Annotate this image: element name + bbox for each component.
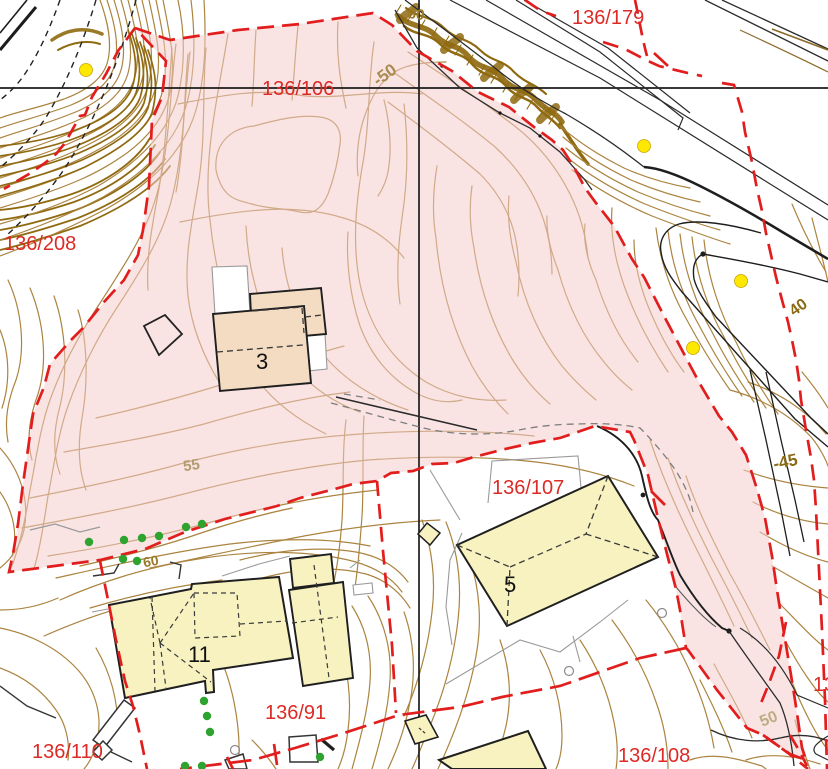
svg-text:55: 55 bbox=[182, 456, 201, 475]
svg-text:136/1: 136/1 bbox=[813, 674, 828, 696]
svg-text:136/108: 136/108 bbox=[618, 745, 690, 767]
svg-text:136/110: 136/110 bbox=[32, 741, 103, 763]
svg-text:11: 11 bbox=[188, 642, 211, 667]
svg-text:5: 5 bbox=[504, 572, 516, 597]
svg-text:136/91: 136/91 bbox=[265, 702, 326, 724]
svg-text:136/179: 136/179 bbox=[572, 7, 644, 29]
svg-text:3: 3 bbox=[256, 349, 268, 374]
svg-text:136/208: 136/208 bbox=[4, 233, 76, 255]
svg-text:60: 60 bbox=[407, 5, 426, 24]
svg-text:60: 60 bbox=[142, 552, 160, 570]
svg-text:136/106: 136/106 bbox=[262, 78, 334, 100]
svg-text:136/107: 136/107 bbox=[492, 477, 564, 499]
